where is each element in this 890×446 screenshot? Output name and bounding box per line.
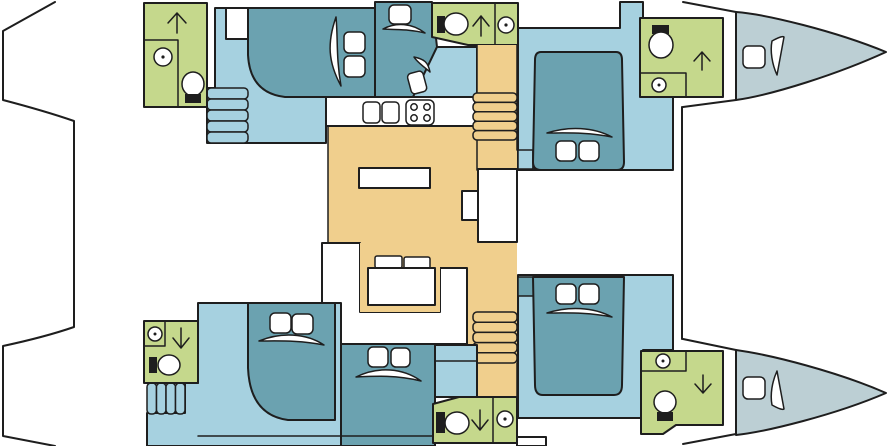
bathroom-port-aft xyxy=(144,3,207,107)
pillow-icon xyxy=(292,314,313,334)
shower-drain xyxy=(161,55,164,58)
bathroom-port-bow xyxy=(640,18,723,97)
catamaran-floorplan xyxy=(0,0,890,446)
cushion xyxy=(375,256,402,268)
nav-desk xyxy=(478,169,517,242)
toilet-icon xyxy=(654,391,676,413)
shower-drain xyxy=(504,23,507,26)
toilet-icon xyxy=(436,412,445,433)
deck-step xyxy=(517,437,546,446)
stern-platform-outline xyxy=(3,2,74,446)
pillow-icon xyxy=(556,141,576,161)
pillow-icon xyxy=(391,348,410,367)
bathroom-starboard-bow xyxy=(641,351,723,434)
shower-drain xyxy=(503,417,506,420)
shower-drain xyxy=(662,360,665,363)
stairs-port-companionway-icon xyxy=(473,93,517,140)
bow-cabin-starboard xyxy=(736,350,886,435)
toilet-icon xyxy=(657,412,673,421)
step xyxy=(518,150,533,169)
shower-drain xyxy=(154,333,157,336)
pillow-icon xyxy=(344,32,365,53)
nav-seat xyxy=(462,191,478,220)
salon-table xyxy=(368,268,435,305)
shower-drain xyxy=(658,84,661,87)
bathroom-starboard-aft xyxy=(144,321,198,383)
toilet-icon xyxy=(444,13,468,35)
toilet-icon xyxy=(149,357,157,373)
pillow-icon xyxy=(368,347,388,367)
sink-icon xyxy=(363,102,380,123)
galley-island xyxy=(359,168,430,188)
pillow-icon xyxy=(579,141,599,161)
bathroom-port-mid xyxy=(432,3,518,45)
pillow-icon xyxy=(389,5,411,24)
stairs-starboard-companionway-icon xyxy=(473,312,517,363)
bow-cabin-port xyxy=(736,12,886,100)
pillow-icon xyxy=(579,284,599,304)
toilet-icon xyxy=(182,72,204,96)
sink-icon xyxy=(382,102,399,123)
galley-counter xyxy=(326,97,475,126)
toilet-icon xyxy=(185,94,201,103)
pillow-icon xyxy=(743,46,765,68)
pillow-icon xyxy=(270,313,291,333)
stairs-port-aft-icon xyxy=(207,88,248,143)
pillow-icon xyxy=(556,284,576,304)
pillow-icon xyxy=(344,56,365,77)
pillow-icon xyxy=(743,377,765,399)
stove-icon xyxy=(406,100,434,125)
toilet-icon xyxy=(158,355,180,375)
toilet-icon xyxy=(649,32,673,58)
toilet-icon xyxy=(445,412,469,434)
stairs-starboard-aft-icon xyxy=(147,383,185,414)
floorplan-drawing xyxy=(0,0,890,446)
